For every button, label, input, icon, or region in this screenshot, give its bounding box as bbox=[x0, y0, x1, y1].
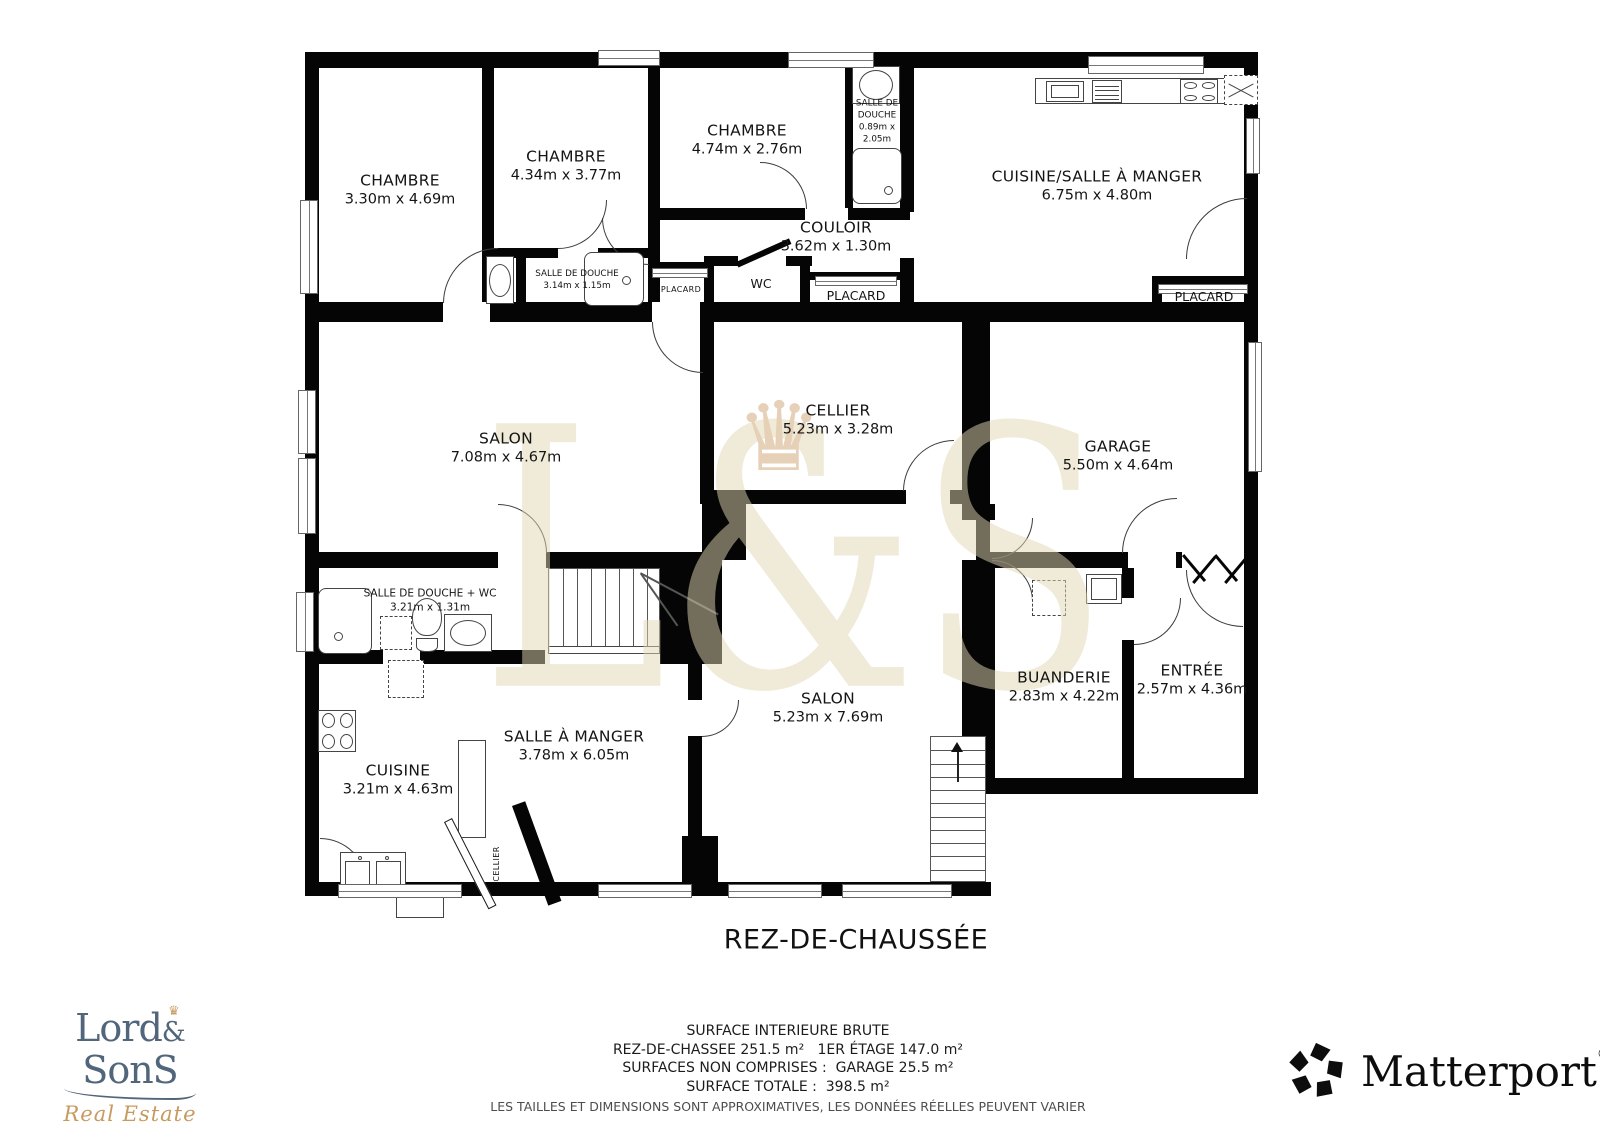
room-label-chambre: CHAMBRE3.30m x 4.69m bbox=[345, 171, 456, 210]
disclaimer: LES TAILLES ET DIMENSIONS SONT APPROXIMA… bbox=[490, 1099, 1085, 1114]
window bbox=[598, 50, 660, 66]
surface-line-floors: REZ-DE-CHASSEE 251.5 m² 1ER ÉTAGE 147.0 … bbox=[490, 1041, 1085, 1060]
matterport-wordmark: Matterport bbox=[1361, 1047, 1597, 1096]
room-label-salle-manger: SALLE À MANGER3.78m x 6.05m bbox=[504, 727, 645, 766]
fixture-dish-rack bbox=[1092, 80, 1122, 103]
wall bbox=[900, 258, 914, 302]
window bbox=[1246, 118, 1260, 174]
matterport-icon bbox=[1285, 1040, 1347, 1102]
matterport-logo: Matterport® bbox=[1285, 1040, 1600, 1102]
room-label-salon: SALON7.08m x 4.67m bbox=[451, 429, 562, 468]
lordsons-tagline: Real Estate bbox=[30, 1102, 230, 1126]
window bbox=[296, 592, 314, 652]
window bbox=[1248, 342, 1262, 472]
door-arc bbox=[1134, 598, 1181, 645]
fixture-ellipse bbox=[859, 70, 893, 100]
stairs-direction-arrow bbox=[950, 742, 964, 782]
fixture-circle bbox=[334, 632, 343, 641]
room-label-chambre: CHAMBRE4.74m x 2.76m bbox=[692, 121, 803, 160]
window bbox=[652, 268, 708, 278]
room-label-placard: PLACARD bbox=[827, 288, 886, 304]
wall bbox=[305, 552, 498, 568]
surface-line-total: SURFACE TOTALE : 398.5 m² bbox=[490, 1078, 1085, 1097]
lordsons-wordmark: Lord♛&SonS bbox=[30, 1008, 230, 1092]
wall bbox=[420, 650, 545, 664]
room-label-placard: PLACARD bbox=[1175, 289, 1234, 305]
wall bbox=[516, 252, 526, 306]
floorplan-page: CHAMBRE3.30m x 4.69mCHAMBRE4.34m x 3.77m… bbox=[0, 0, 1600, 1131]
fixture-circle bbox=[622, 276, 631, 285]
wall bbox=[1152, 276, 1162, 312]
wall bbox=[1122, 568, 1134, 598]
room-label-salon: SALON5.23m x 7.69m bbox=[773, 689, 884, 728]
wall bbox=[660, 552, 676, 664]
room-label-cuisine-salle-manger: CUISINE/SALLE À MANGER6.75m x 4.80m bbox=[992, 167, 1203, 206]
door-arc bbox=[1186, 198, 1247, 259]
surface-line-gross: SURFACE INTERIEURE BRUTE bbox=[490, 1022, 1085, 1041]
room-label-cellier: CELLIER5.23m x 3.28m bbox=[783, 401, 894, 440]
window bbox=[815, 276, 897, 286]
surface-summary: SURFACE INTERIEURE BRUTE REZ-DE-CHASSEE … bbox=[490, 1022, 1085, 1114]
fixture-dashed bbox=[380, 616, 412, 650]
wall bbox=[1122, 640, 1134, 778]
lordsons-word-lord: Lord bbox=[75, 1006, 162, 1050]
room-label-salle-de-douche-wc: SALLE DE DOUCHE + WC3.21m x 1.31m bbox=[364, 587, 497, 614]
room-label-salle-de-douche: SALLE DE DOUCHE3.14m x 1.15m bbox=[535, 269, 619, 293]
fixture-dashed bbox=[1032, 580, 1066, 616]
lordsons-word-sons: SonS bbox=[82, 1048, 177, 1092]
window bbox=[598, 884, 692, 898]
wall bbox=[976, 322, 990, 568]
door-arc bbox=[760, 162, 807, 209]
fixture-appliance bbox=[1046, 81, 1084, 102]
door-arc bbox=[702, 700, 739, 737]
door-arc bbox=[652, 322, 703, 373]
lordsons-crown-icon: ♛ bbox=[168, 1005, 179, 1019]
fixture-circle bbox=[884, 186, 893, 195]
door-arc bbox=[903, 440, 954, 491]
room-label-wc: WC bbox=[750, 276, 771, 292]
fixture-appliance bbox=[1086, 574, 1122, 604]
door-arc bbox=[558, 200, 607, 249]
fixture-ellipse bbox=[450, 620, 486, 646]
room-label-placard: PLACARD bbox=[661, 285, 701, 295]
floor-plan: CHAMBRE3.30m x 4.69mCHAMBRE4.34m x 3.77m… bbox=[0, 0, 1600, 1131]
room-label-couloir: COULOIR3.62m x 1.30m bbox=[781, 218, 892, 257]
wall bbox=[800, 256, 810, 306]
lordsons-ampersand: & bbox=[162, 1017, 185, 1048]
wall bbox=[950, 490, 976, 504]
room-label-salle-de-douche: SALLE DE DOUCHE0.89m x 2.05m bbox=[849, 98, 905, 146]
fixture-ellipse bbox=[489, 264, 511, 297]
window bbox=[338, 884, 462, 898]
room-label-entr-e: ENTRÉE2.57m x 4.36m bbox=[1137, 661, 1248, 700]
floor-title: REZ-DE-CHAUSSÉE bbox=[724, 925, 988, 956]
fixture-hob bbox=[318, 710, 356, 752]
fixture-rrect bbox=[852, 148, 902, 204]
room-label-buanderie: BUANDERIE2.83m x 4.22m bbox=[1009, 668, 1120, 707]
wall bbox=[962, 504, 995, 520]
window bbox=[728, 884, 822, 898]
wall bbox=[995, 778, 1258, 794]
fixture-rect bbox=[396, 896, 444, 918]
window bbox=[1088, 56, 1204, 74]
fixture-rect bbox=[548, 646, 660, 654]
surface-line-excluded: SURFACES NON COMPRISES : GARAGE 25.5 m² bbox=[490, 1059, 1085, 1078]
room-label-cuisine: CUISINE3.21m x 4.63m bbox=[343, 761, 454, 800]
lordsons-logo: Lord♛&SonS Real Estate bbox=[30, 1008, 230, 1126]
wall bbox=[305, 302, 443, 322]
fixture-rect bbox=[458, 740, 486, 838]
room-label-chambre: CHAMBRE4.34m x 3.77m bbox=[511, 147, 622, 186]
door-arc bbox=[1122, 498, 1177, 553]
door-arc bbox=[498, 504, 547, 553]
window bbox=[298, 390, 316, 454]
window bbox=[298, 458, 316, 534]
window bbox=[300, 200, 318, 294]
window bbox=[842, 884, 952, 898]
wall bbox=[1176, 552, 1182, 568]
wall bbox=[688, 560, 702, 700]
wall bbox=[1152, 276, 1258, 284]
staircase bbox=[548, 568, 660, 648]
fixture-dashed bbox=[388, 660, 424, 698]
window bbox=[788, 52, 874, 68]
room-label-cellier: CELLIER bbox=[492, 846, 502, 881]
wall bbox=[682, 836, 718, 882]
fixture-dashed-unit bbox=[1224, 75, 1258, 105]
room-label-garage: GARAGE5.50m x 4.64m bbox=[1063, 437, 1174, 476]
fixture-hob bbox=[1180, 79, 1218, 104]
wall bbox=[962, 322, 976, 504]
